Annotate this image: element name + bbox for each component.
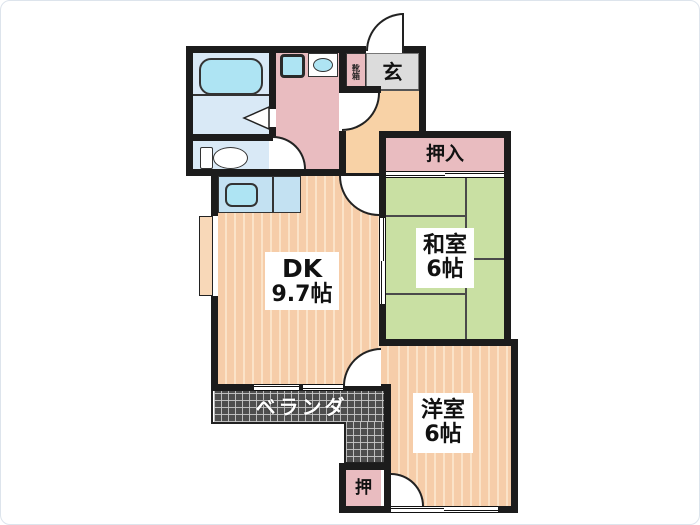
label-oshiire: 押入 [386, 142, 504, 166]
room-label-youshitsu: 洋室 6帖 [413, 393, 473, 453]
washitsu-size: 6帖 [426, 258, 463, 282]
label-oshi: 押 [346, 477, 381, 499]
dk-size: 9.7帖 [272, 283, 333, 307]
dk-name: DK [282, 255, 322, 283]
floor-plan: DK 9.7帖 和室 6帖 洋室 6帖 押入 押 玄 靴箱 ベランダ [0, 0, 700, 525]
room-label-washitsu: 和室 6帖 [416, 228, 474, 288]
youshitsu-name: 洋室 [421, 399, 465, 423]
label-shoe-cabinet: 靴箱 [349, 56, 363, 88]
label-veranda: ベランダ [229, 394, 374, 420]
room-label-dk: DK 9.7帖 [265, 252, 339, 310]
youshitsu-size: 6帖 [424, 423, 461, 447]
label-genkan: 玄 [366, 59, 419, 85]
washitsu-name: 和室 [423, 234, 467, 258]
